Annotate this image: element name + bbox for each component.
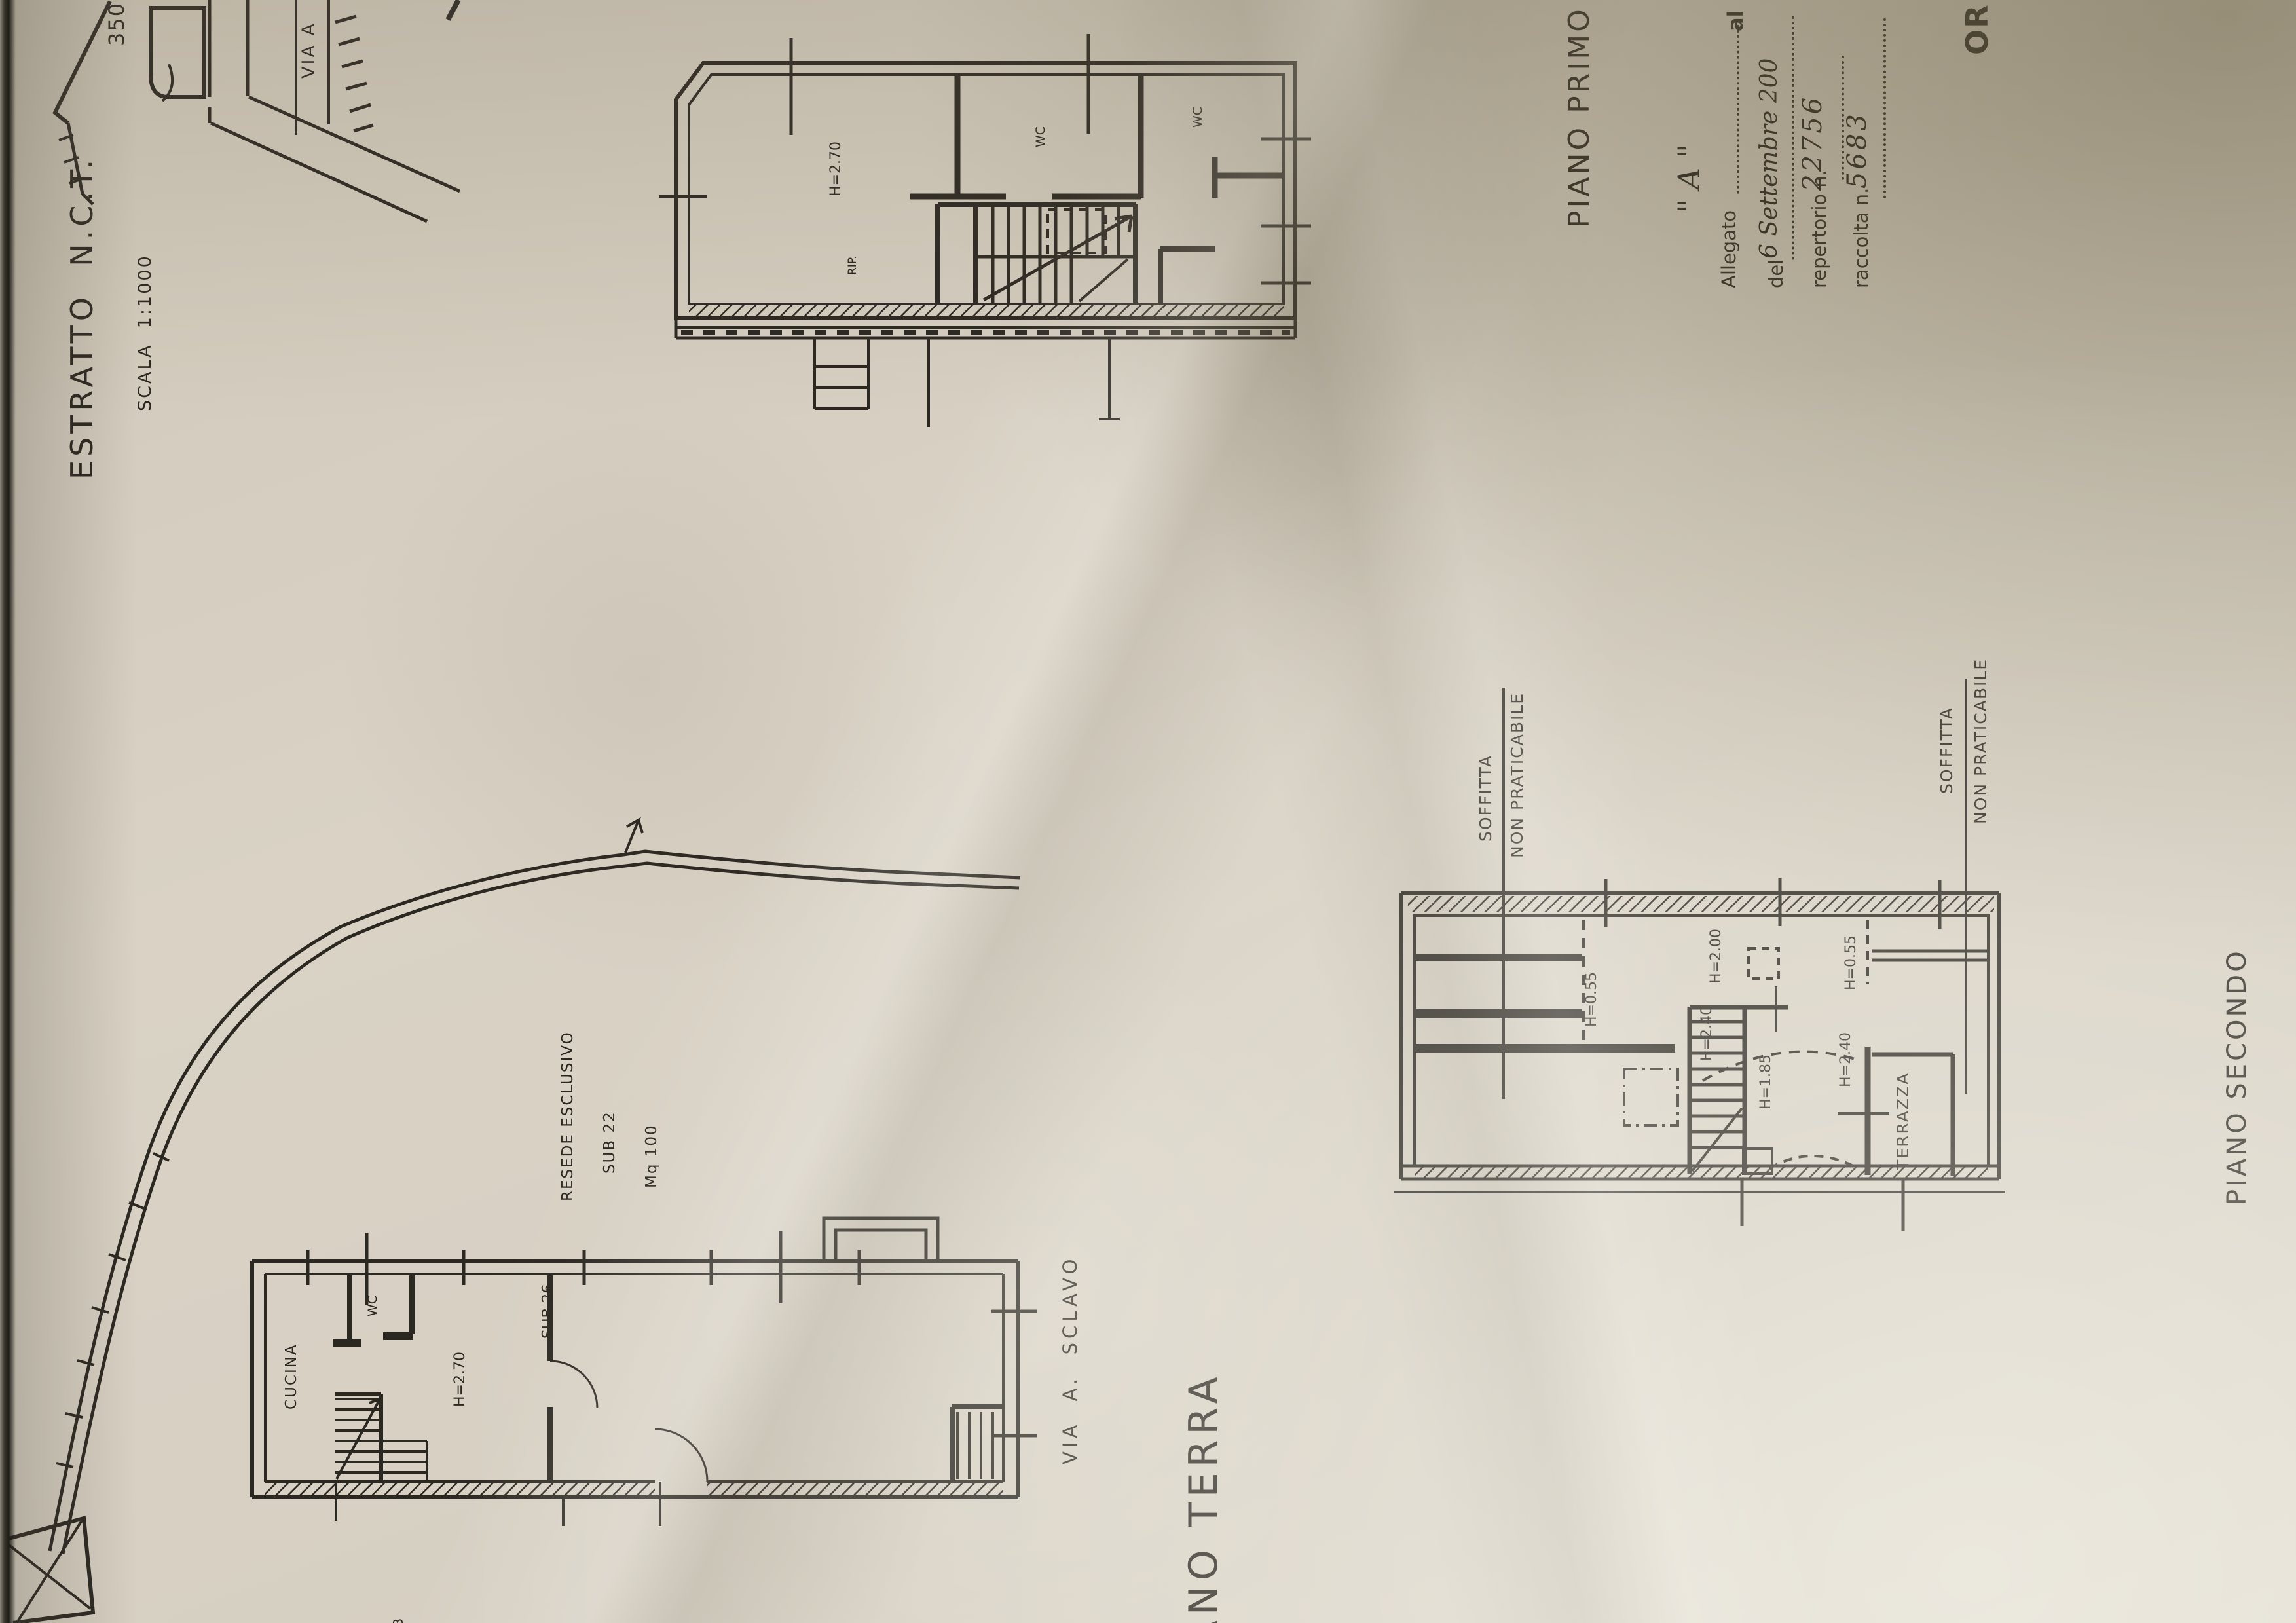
scanned-cadastral-plan-page: ESTRATTO N.C.T. SCALA 1:1000 350 VIA A O… — [0, 0, 2296, 1623]
map-parcel-number: 350 — [106, 2, 127, 46]
ground-floor-title: PIANO TERRA — [1184, 1371, 1223, 1623]
resede-boundary-curve — [50, 820, 1020, 1554]
raccolta-label: raccolta n. — [1852, 188, 1871, 288]
allegato-suffix: al — [1725, 10, 1746, 31]
cucina-label: CUCINA — [284, 1343, 299, 1409]
ground-wc-label: WC — [367, 1296, 379, 1316]
allegato-letter: " A " — [1674, 144, 1704, 213]
second-floor-title: PIANO SECONDO — [2224, 948, 2250, 1205]
edge-sub-fragment: SUB — [392, 1618, 405, 1623]
non-praticabile-left-label: NON PRATICABILE — [1509, 692, 1525, 858]
ground-floor-plan — [252, 1218, 1037, 1526]
map-street-label: VIA A — [300, 22, 318, 79]
h055-left-label: H=0.55 — [1585, 972, 1599, 1027]
date-value: 6 Settembre 200 — [1758, 58, 1781, 259]
allegato-label: Allegato — [1720, 210, 1739, 288]
sub26-label: SUB 26 — [541, 1284, 556, 1339]
h200-label: H=2.00 — [1709, 929, 1724, 984]
first-floor-wc-2: WC — [1192, 107, 1204, 128]
first-floor-storage: RIP. — [847, 255, 859, 275]
first-floor-wc-1: WC — [1035, 126, 1047, 147]
raccolta-underline — [1883, 18, 1886, 198]
first-floor-height: H=2.70 — [829, 141, 843, 196]
via-sclavo-label: VIA A. SCLAVO — [1061, 1256, 1080, 1464]
h240-left-label: H=2.40 — [1700, 1006, 1714, 1061]
del-label: del — [1767, 259, 1786, 288]
scala-label: SCALA 1:1000 — [136, 254, 154, 411]
resede-label: RESEDE ESCLUSIVO — [561, 1031, 576, 1201]
non-praticabile-right-label: NON PRATICABILE — [1972, 658, 1989, 824]
ground-height-label: H=2.70 — [453, 1352, 468, 1407]
allegato-dotted-line — [1737, 25, 1739, 194]
terrazza-label: TERRAZZA — [1895, 1072, 1911, 1170]
plan-drawings — [0, 0, 2296, 1623]
sub22-label: SUB 22 — [602, 1111, 618, 1174]
mq100-label: Mq 100 — [644, 1124, 659, 1188]
h240-right-label: H=2.40 — [1839, 1032, 1853, 1087]
soffitta-left-label: SOFFITTA — [1477, 755, 1494, 842]
stamp-fragment: OR — [1962, 3, 1992, 55]
scan-edge-strip — [0, 0, 16, 1623]
h055-right-label: H=0.55 — [1844, 935, 1859, 990]
estratto-title: ESTRATTO N.C.T. — [67, 156, 97, 479]
repertorio-number: 22756 — [1800, 95, 1826, 191]
date-underline — [1792, 16, 1794, 260]
h185-label: H=1.85 — [1759, 1054, 1773, 1110]
first-floor-title: PIANO PRIMO — [1565, 7, 1594, 228]
soffitta-right-label: SOFFITTA — [1938, 707, 1955, 794]
raccolta-number: 5683 — [1844, 111, 1870, 189]
first-floor-plan — [659, 34, 1311, 427]
